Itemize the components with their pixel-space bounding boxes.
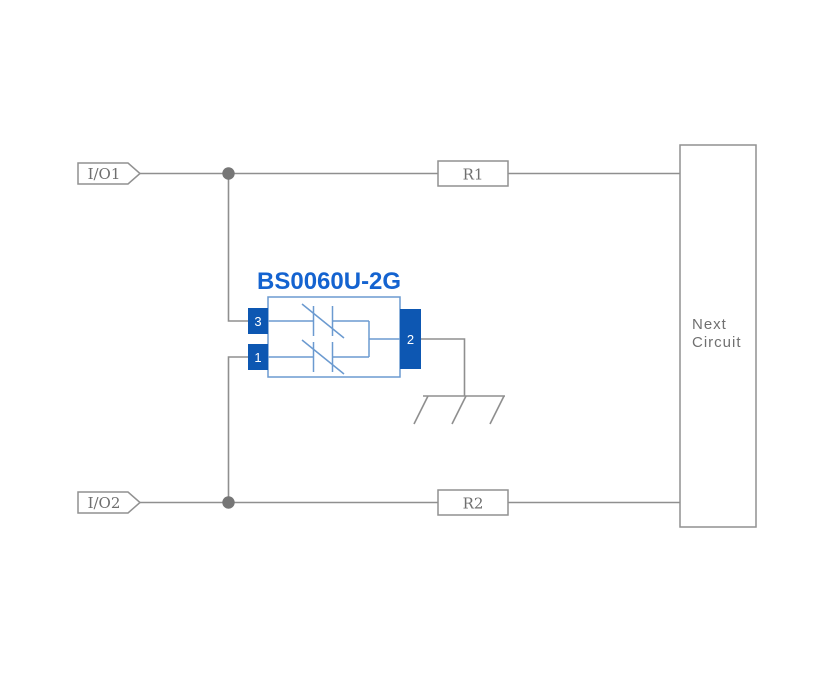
resistor-r2: R2 (438, 490, 508, 515)
resistor-r1: R1 (438, 161, 508, 186)
io2-tag: I/O2 (78, 492, 140, 513)
esd-component: BS0060U-2G (248, 268, 421, 377)
pin-2: 2 (400, 309, 421, 369)
next-circuit-label-line1: Next (692, 316, 727, 333)
pin-3-number: 3 (254, 314, 261, 329)
ground-slash-2 (452, 396, 466, 424)
resistor-r2-label: R2 (463, 495, 484, 513)
resistor-r1-label: R1 (463, 166, 484, 184)
ground-slash-3 (490, 396, 504, 424)
component-title: BS0060U-2G (257, 268, 401, 295)
wire-pin2-to-ground (421, 339, 465, 396)
chassis-ground-icon (414, 396, 505, 424)
junction-dot-top-icon (222, 167, 234, 179)
wire-junction1-to-pin3 (229, 174, 249, 322)
pin-2-number: 2 (407, 332, 414, 347)
wire-pin1-to-junction2 (229, 357, 249, 503)
schematic-svg: I/O1 I/O2 R1 R2 Next Circuit (0, 0, 832, 675)
io1-tag-label: I/O1 (88, 165, 121, 183)
next-circuit-block: Next Circuit (680, 145, 756, 527)
schematic-canvas: I/O1 I/O2 R1 R2 Next Circuit (0, 0, 832, 675)
pin-3: 3 (248, 308, 268, 334)
pin-1-number: 1 (254, 350, 261, 365)
io1-tag: I/O1 (78, 163, 140, 184)
io2-tag-label: I/O2 (88, 494, 121, 512)
next-circuit-label-line2: Circuit (692, 334, 742, 351)
ground-slash-1 (414, 396, 428, 424)
pin-1: 1 (248, 344, 268, 370)
junction-dot-bottom-icon (222, 496, 234, 508)
